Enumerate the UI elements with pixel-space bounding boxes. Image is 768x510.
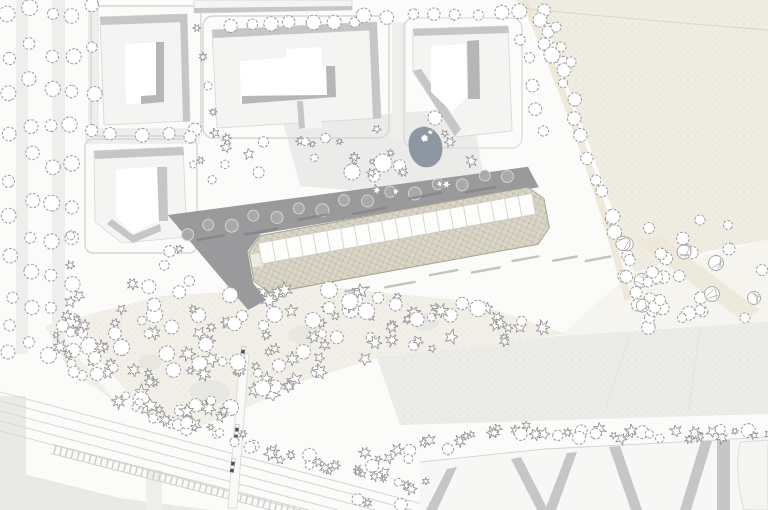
se-shadow-band-6 — [717, 440, 730, 510]
tree-icon — [456, 297, 468, 309]
forest-clearing-4 — [138, 354, 162, 370]
detail-tree-icon — [636, 299, 649, 312]
tree-icon — [470, 300, 487, 317]
detail-tree-icon — [748, 292, 761, 305]
road-vertical-3 — [88, 0, 99, 140]
detail-tree-icon — [705, 287, 720, 302]
detail-tree-icon — [677, 245, 691, 259]
tree-icon — [164, 245, 176, 257]
detail-tree-icon — [709, 256, 724, 271]
detail-tree-icon — [616, 236, 630, 250]
site-plan — [0, 0, 768, 510]
building-c-courtyard-shadow — [467, 40, 480, 99]
road-vertical-1 — [16, 0, 28, 354]
tree-icon — [266, 306, 282, 322]
tree-icon — [323, 301, 336, 314]
tree-icon — [220, 160, 229, 169]
tree-icon — [68, 366, 80, 378]
tree-icon — [244, 441, 257, 454]
se-rounded-building — [738, 440, 768, 510]
tree-icon — [85, 124, 98, 137]
site-plan-canvas — [0, 0, 768, 510]
